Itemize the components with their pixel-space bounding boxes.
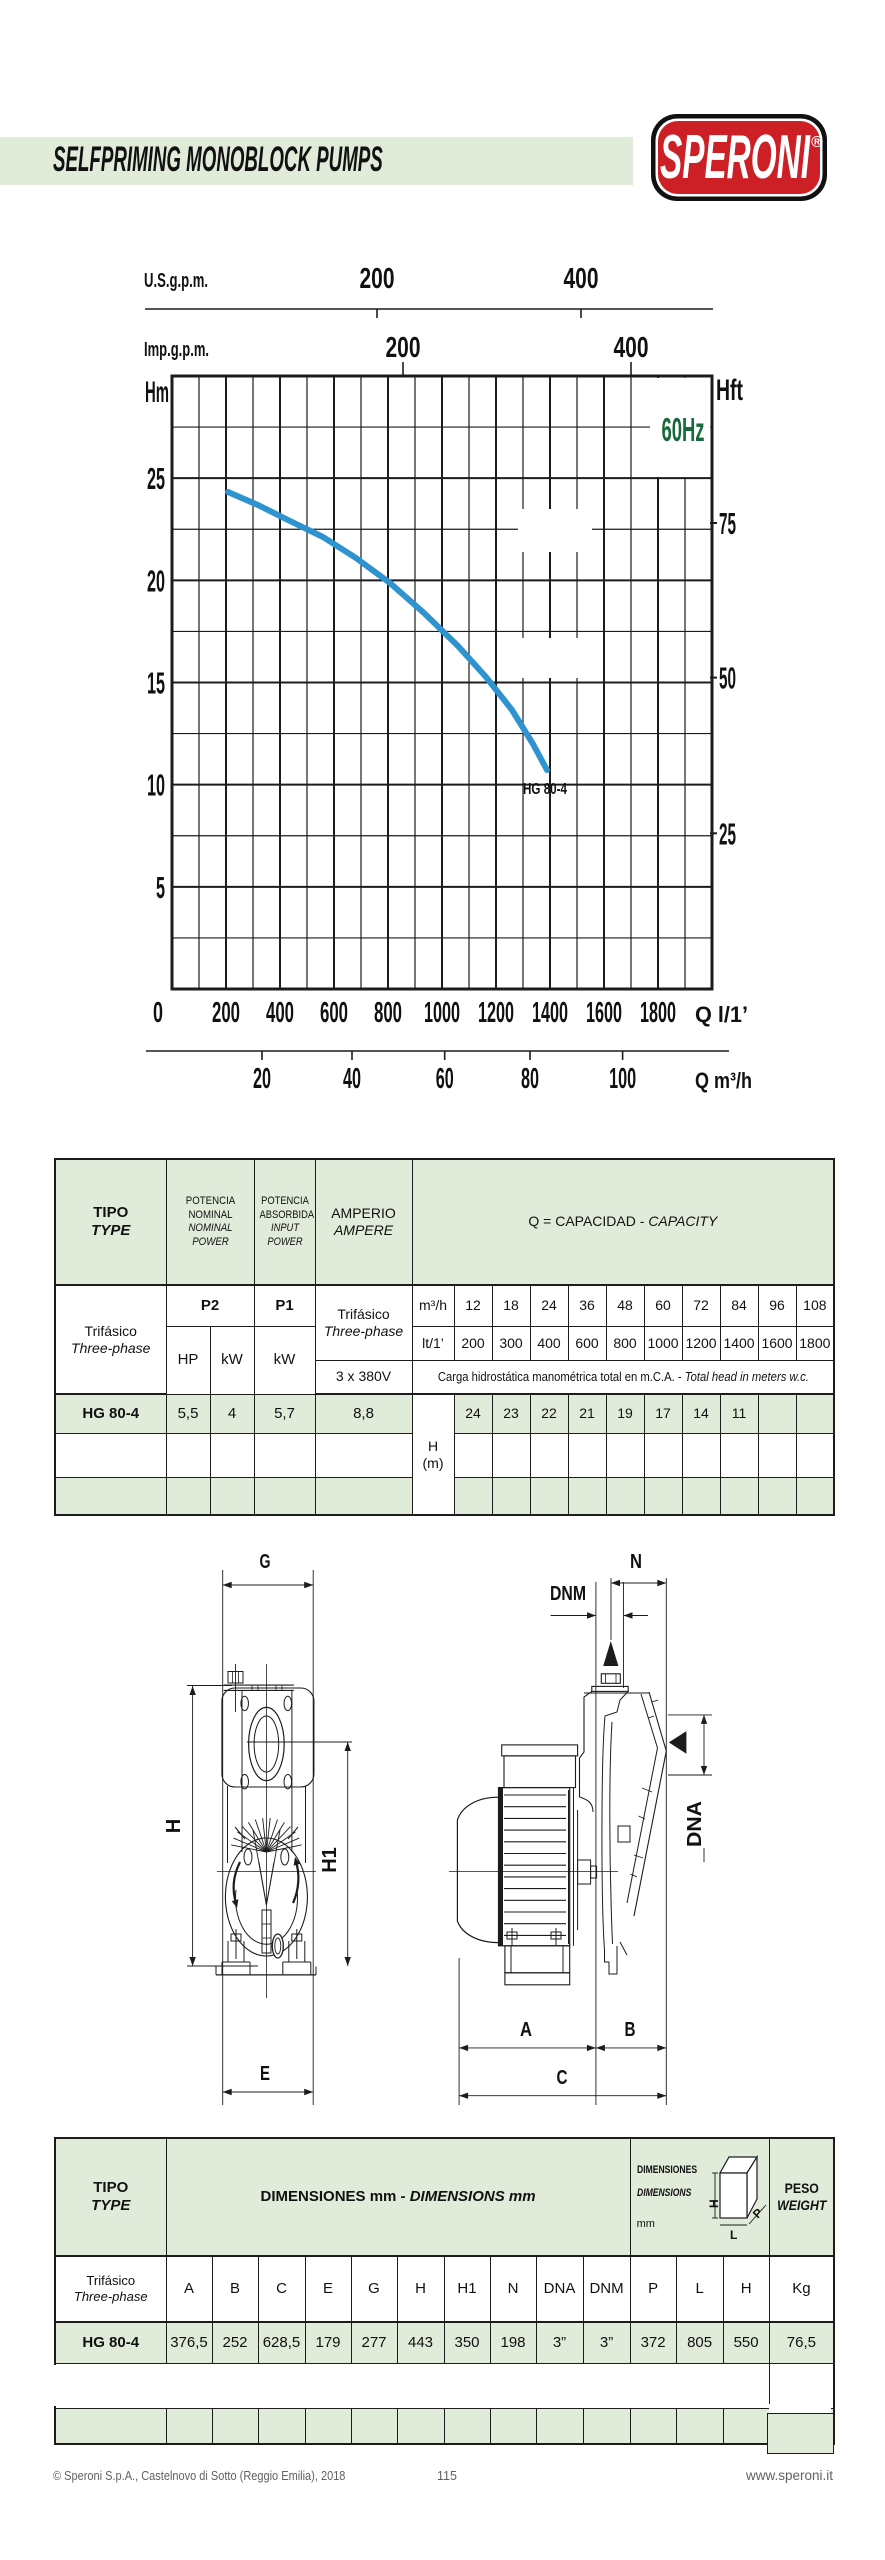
svg-text:15: 15: [147, 666, 165, 701]
svg-text:10: 10: [147, 768, 165, 803]
svg-text:U.S.g.p.m.: U.S.g.p.m.: [144, 270, 208, 292]
svg-text:100: 100: [609, 1063, 636, 1095]
svg-text:75: 75: [719, 506, 736, 541]
svg-text:800: 800: [374, 997, 402, 1029]
svg-text:80: 80: [521, 1063, 539, 1095]
svg-text:50: 50: [719, 661, 736, 696]
svg-text:Hft: Hft: [716, 374, 743, 407]
svg-text:1600: 1600: [586, 997, 622, 1029]
svg-text:B: B: [625, 2019, 636, 2041]
svg-text:G: G: [260, 1551, 271, 1573]
svg-text:®: ®: [811, 134, 823, 151]
svg-text:H1: H1: [319, 1847, 341, 1873]
svg-text:40: 40: [343, 1063, 361, 1095]
svg-text:5: 5: [156, 870, 165, 905]
svg-text:200: 200: [360, 263, 395, 295]
svg-text:N: N: [630, 1551, 642, 1573]
svg-text:1400: 1400: [532, 997, 568, 1029]
svg-text:60Hz: 60Hz: [662, 411, 705, 448]
svg-text:Q m³/h: Q m³/h: [695, 1068, 752, 1093]
svg-text:400: 400: [614, 332, 649, 364]
svg-text:A: A: [520, 2019, 532, 2041]
svg-text:E: E: [260, 2063, 270, 2085]
svg-text:400: 400: [564, 263, 599, 295]
svg-text:20: 20: [147, 563, 165, 598]
svg-text:60: 60: [436, 1063, 454, 1095]
svg-text:0: 0: [153, 997, 163, 1029]
svg-text:Hm: Hm: [145, 376, 169, 409]
svg-text:1000: 1000: [424, 997, 460, 1029]
svg-text:H: H: [163, 1819, 185, 1833]
svg-text:DNM: DNM: [550, 1583, 586, 1605]
svg-text:HG 80-4: HG 80-4: [523, 781, 567, 798]
svg-text:400: 400: [266, 997, 294, 1029]
svg-text:200: 200: [386, 332, 421, 364]
svg-text:25: 25: [719, 816, 736, 851]
svg-text:SPERONI: SPERONI: [660, 123, 811, 192]
svg-text:Imp.g.p.m.: Imp.g.p.m.: [144, 339, 209, 361]
svg-text:DNA: DNA: [684, 1801, 706, 1847]
svg-text:20: 20: [253, 1063, 271, 1095]
svg-text:25: 25: [147, 461, 165, 496]
svg-text:H: H: [709, 2199, 721, 2208]
svg-text:Q l/1’: Q l/1’: [695, 1002, 748, 1027]
svg-text:C: C: [557, 2067, 568, 2089]
svg-text:1800: 1800: [640, 997, 676, 1029]
svg-text:L: L: [730, 2228, 737, 2241]
svg-text:600: 600: [320, 997, 348, 1029]
svg-text:1200: 1200: [478, 997, 514, 1029]
svg-text:200: 200: [212, 997, 240, 1029]
